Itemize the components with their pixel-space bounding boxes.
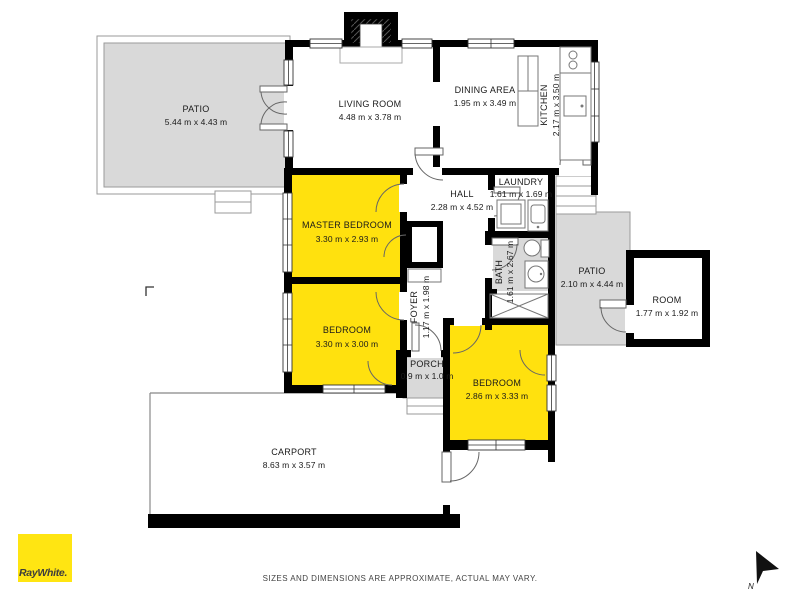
room-label: LAUNDRY (499, 177, 544, 187)
door-icon (442, 452, 479, 482)
room-label: KITCHEN (539, 84, 549, 125)
room-dims: 5.44 m x 4.43 m (165, 117, 227, 127)
kitchen-counter (560, 73, 591, 160)
hall-closet (406, 221, 443, 268)
patio-right-steps (556, 176, 596, 214)
disclaimer-text: SIZES AND DIMENSIONS ARE APPROXIMATE, AC… (263, 574, 538, 583)
room-dims: 0.9 m x 1.0 m (401, 371, 454, 381)
window-icon (468, 39, 514, 48)
room-label: CARPORT (271, 447, 317, 457)
room-label: BEDROOM (323, 325, 371, 335)
room-dims: 8.63 m x 3.57 m (263, 460, 325, 470)
patio-top-floor (104, 43, 288, 187)
room-dims: 1.61 m x 1.69 m (490, 189, 552, 199)
laundry-tub-icon (528, 200, 548, 231)
floor-plan-drawing: PATIO 5.44 m x 4.43 m LIVING ROOM 4.48 m… (0, 0, 800, 600)
window-icon (283, 293, 292, 372)
room-label: PATIO (579, 266, 606, 276)
room-dims: 1.95 m x 3.49 m (454, 98, 516, 108)
patio-top-steps (215, 191, 251, 213)
room-dims: 3.30 m x 2.93 m (316, 234, 378, 244)
room-label: PATIO (183, 104, 210, 114)
room-label: MASTER BEDROOM (302, 220, 392, 230)
porch-steps (407, 398, 445, 414)
raywhite-logo: RayWhite. (18, 534, 72, 582)
room-dims: 2.86 m x 3.33 m (466, 391, 528, 401)
footer: RayWhite. SIZES AND DIMENSIONS ARE APPRO… (18, 534, 779, 591)
window-icon (310, 39, 342, 48)
fireplace-chimney (340, 12, 402, 63)
window-icon (468, 440, 525, 450)
window-icon (283, 193, 292, 272)
room-dims: 1.77 m x 1.92 m (636, 308, 698, 318)
toilet-icon (524, 240, 549, 257)
room-dims: 2.17 m x 3.50 m (551, 74, 561, 136)
washing-machine-icon (497, 200, 525, 228)
room-dims: 3.30 m x 3.00 m (316, 339, 378, 349)
room-dims: 2.10 m x 4.44 m (561, 279, 623, 289)
floor-plan-page: PATIO 5.44 m x 4.43 m LIVING ROOM 4.48 m… (0, 0, 800, 600)
stove-icon (560, 47, 591, 73)
north-label: N (748, 582, 754, 591)
room-label: LIVING ROOM (339, 99, 402, 109)
corner-mark (146, 287, 154, 296)
room-label: HALL (450, 189, 474, 199)
window-icon (547, 355, 556, 381)
room-label: BEDROOM (473, 378, 521, 388)
raywhite-logo-text: RayWhite. (19, 567, 67, 579)
room-dims: 1.61 m x 2.67 m (505, 241, 515, 303)
room-label: FOYER (409, 291, 419, 324)
room-label: BATH (494, 260, 504, 284)
room-dims: 4.48 m x 3.78 m (339, 112, 401, 122)
room-label: PORCH (410, 359, 444, 369)
window-icon (402, 39, 432, 48)
vanity-icon (525, 261, 548, 288)
room-dims: 2.28 m x 4.52 m (431, 202, 493, 212)
window-icon (547, 385, 556, 411)
kitchen-cabinet (518, 56, 538, 126)
window-icon (284, 60, 293, 85)
window-icon (284, 131, 293, 157)
north-arrow-icon: N (748, 551, 779, 591)
room-dims: 1.17 m x 1.98 m (421, 276, 431, 338)
room-label: DINING AREA (455, 85, 516, 95)
crossed-area (490, 294, 548, 318)
window-icon (323, 385, 385, 393)
room-label: ROOM (653, 295, 682, 305)
